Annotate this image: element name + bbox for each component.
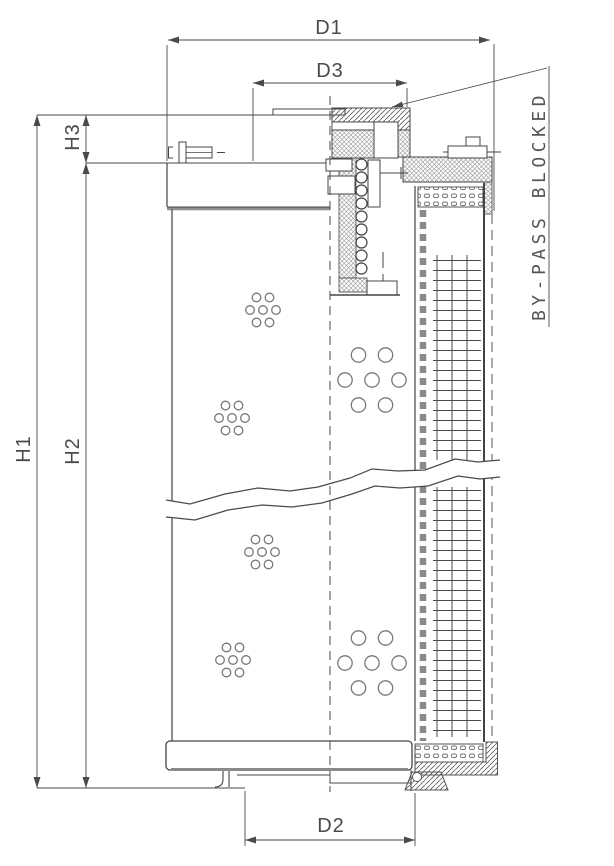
left-clip-bracket	[169, 147, 174, 158]
drawing-canvas: D1 D3 D2 H1 H2 H3 BY-PASS BLOCKED	[0, 0, 614, 866]
arrow	[83, 163, 90, 174]
spring-retainer-lower	[328, 176, 355, 194]
dimension-label-h2: H2	[62, 437, 84, 465]
spigot-profile	[237, 775, 411, 783]
post-foot-plate	[367, 281, 397, 295]
valve-sleeve	[368, 160, 380, 207]
bowl-wall-top-section	[484, 182, 492, 214]
dimension-label-h3: H3	[62, 123, 84, 151]
arrow	[83, 152, 90, 163]
bypass-spring-assembly	[326, 158, 408, 295]
dimension-label-d3: D3	[316, 60, 344, 82]
head-cavity	[374, 122, 398, 158]
arrow	[253, 80, 264, 87]
perforation-cluster	[338, 348, 406, 412]
arrow	[83, 777, 90, 788]
bottom-fitting-orifice	[413, 773, 422, 782]
leader-line	[392, 68, 547, 107]
arrow	[245, 837, 256, 844]
bottom-end-cap	[166, 741, 448, 791]
media-mesh-upper	[433, 255, 481, 460]
arrow	[34, 115, 41, 126]
perforation-cluster	[338, 631, 406, 695]
media-mesh-lower	[433, 487, 481, 737]
arrow	[34, 777, 41, 788]
cap-block-section	[332, 130, 374, 158]
perforation-cluster	[215, 401, 250, 435]
bottom-seal-band	[415, 744, 483, 762]
perforation-cluster	[245, 535, 280, 569]
filter-body-outline	[86, 163, 330, 741]
bottom-left-bracket	[215, 771, 229, 787]
left-clip-post	[179, 142, 186, 163]
head-stub-section	[398, 130, 410, 157]
head-arm-section	[403, 157, 492, 182]
arrow	[404, 837, 415, 844]
bottom-fitting-section	[405, 772, 448, 790]
top-seal-band	[418, 187, 483, 207]
spring-coils	[356, 159, 367, 274]
post-foot-section	[339, 278, 367, 292]
arrow	[396, 80, 407, 87]
leader-arrow	[392, 102, 403, 107]
dimension-label-h1: H1	[13, 435, 35, 463]
arrow	[168, 37, 179, 44]
arrow	[479, 37, 490, 44]
cap-white-band	[332, 122, 374, 130]
dimension-label-d1: D1	[315, 17, 343, 39]
filter-element-cross-section-drawing: D1 D3 D2 H1 H2 H3 BY-PASS BLOCKED	[0, 0, 614, 866]
bottom-cap-outline	[166, 741, 412, 770]
perforation-cluster	[216, 643, 251, 677]
right-clip-bar	[448, 146, 487, 158]
perforation-cluster	[246, 293, 281, 327]
right-clip-tab	[466, 137, 480, 146]
dimension-label-d2: D2	[317, 815, 345, 837]
bypass-note-label: BY-PASS BLOCKED	[529, 91, 550, 321]
